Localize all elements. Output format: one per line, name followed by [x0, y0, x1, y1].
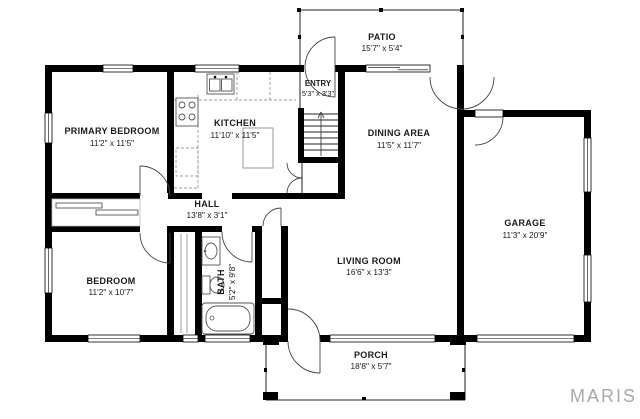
refrigerator [176, 148, 198, 176]
bath-door [222, 232, 252, 262]
garage-service-door [475, 110, 503, 145]
room-label-kitchen: KITCHEN [214, 118, 256, 128]
patio-slider [366, 65, 430, 72]
room-dims-patio: 15'7" x 5'4" [362, 43, 403, 53]
bedroom-door [140, 233, 170, 263]
kitchen-sink [207, 74, 234, 94]
room-dims-living: 16'6" x 13'3" [346, 267, 392, 277]
stove [176, 98, 198, 126]
room-label-dining: DINING AREA [368, 128, 431, 138]
room-label-garage: GARAGE [504, 218, 545, 228]
room-dims-kitchen: 11'10" x 11'5" [211, 130, 260, 140]
room-dims-bath: 5'2" x 9'8" [227, 264, 237, 300]
room-label-patio: PATIO [368, 32, 396, 42]
wall-openings [288, 65, 457, 342]
room-dims-entry: 5'3" x 3'3" [302, 89, 335, 98]
garage-door [477, 335, 574, 342]
room-dims-primary-bedroom: 11'2" x 11'5" [90, 138, 134, 148]
bathtub [202, 303, 254, 334]
exterior-walls [45, 65, 591, 342]
room-dims-bedroom: 11'2" x 10'7" [89, 287, 134, 297]
primary-bedroom-door [140, 166, 170, 196]
room-label-hall: HALL [194, 199, 219, 209]
room-label-bedroom: BEDROOM [86, 276, 135, 286]
room-dims-garage: 11'3" x 20'9" [503, 230, 548, 240]
room-label-living: LIVING ROOM [337, 256, 401, 266]
under-stair-closet [287, 163, 302, 193]
room-label-bath: BATH [216, 269, 226, 295]
staircase [304, 112, 338, 156]
windows [45, 65, 591, 342]
room-dims-porch: 18'8" x 5'7" [351, 361, 392, 371]
room-label-porch: PORCH [354, 350, 388, 360]
room-dims-dining: 11'5" x 11'7" [377, 140, 421, 150]
room-dims-hall: 13'8" x 3'1" [187, 210, 228, 220]
hall-closet-door [263, 208, 281, 226]
vanity-sink [202, 237, 220, 265]
maris-watermark: MARIS [570, 386, 637, 406]
floor-plan-svg: PATIO 15'7" x 5'4" ENTRY 5'3" x 3'3" PRI… [0, 0, 640, 419]
floor-plan: PATIO 15'7" x 5'4" ENTRY 5'3" x 3'3" PRI… [0, 0, 640, 419]
room-label-primary-bedroom: PRIMARY BEDROOM [64, 126, 159, 136]
room-labels: PATIO 15'7" x 5'4" ENTRY 5'3" x 3'3" PRI… [64, 32, 547, 371]
bedroom-closet-sliders [52, 199, 140, 226]
room-label-entry: ENTRY [305, 79, 332, 88]
wardrobe-strip [181, 234, 187, 333]
